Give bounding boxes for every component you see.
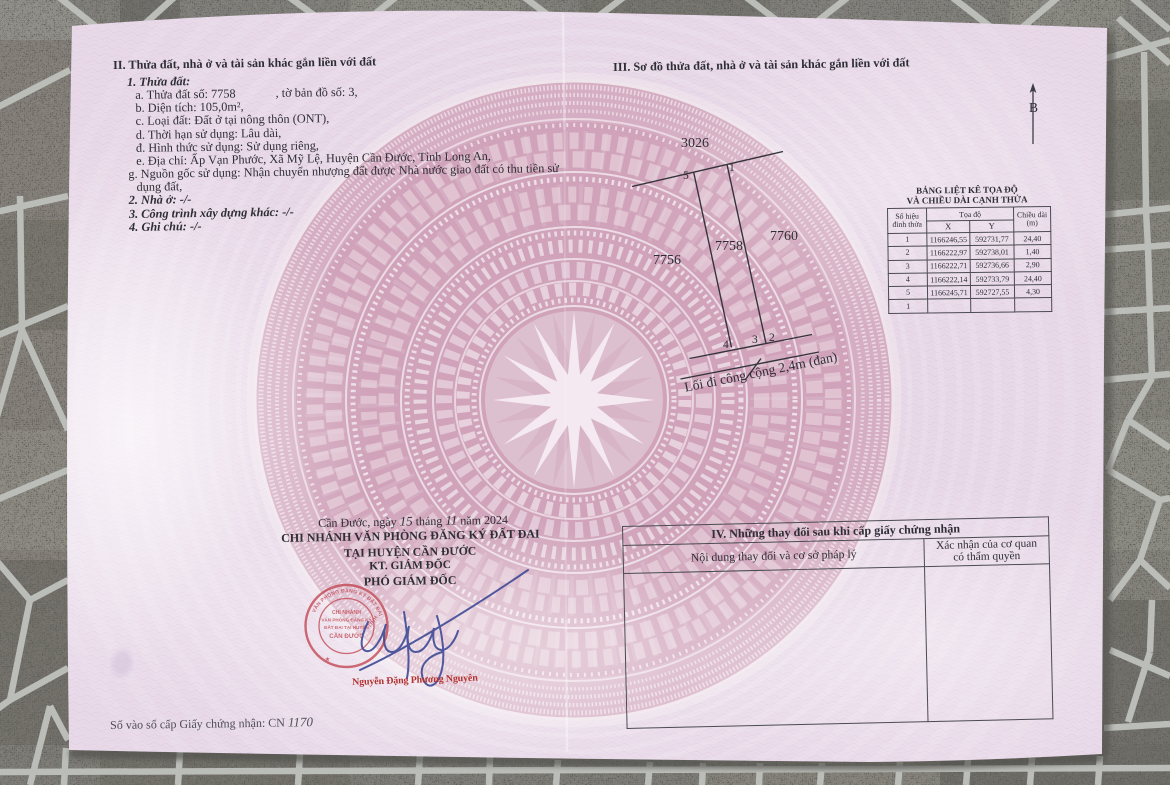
svg-text:CẦN ĐƯỚC: CẦN ĐƯỚC — [329, 632, 364, 640]
svg-text:CHI NHÁNH: CHI NHÁNH — [332, 609, 361, 616]
svg-text:ĐẤT ĐAI TẠI HUYỆN: ĐẤT ĐAI TẠI HUYỆN — [324, 623, 369, 630]
svg-text:VĂN PHÒNG ĐĂNG KÝ: VĂN PHÒNG ĐĂNG KÝ — [321, 616, 371, 623]
